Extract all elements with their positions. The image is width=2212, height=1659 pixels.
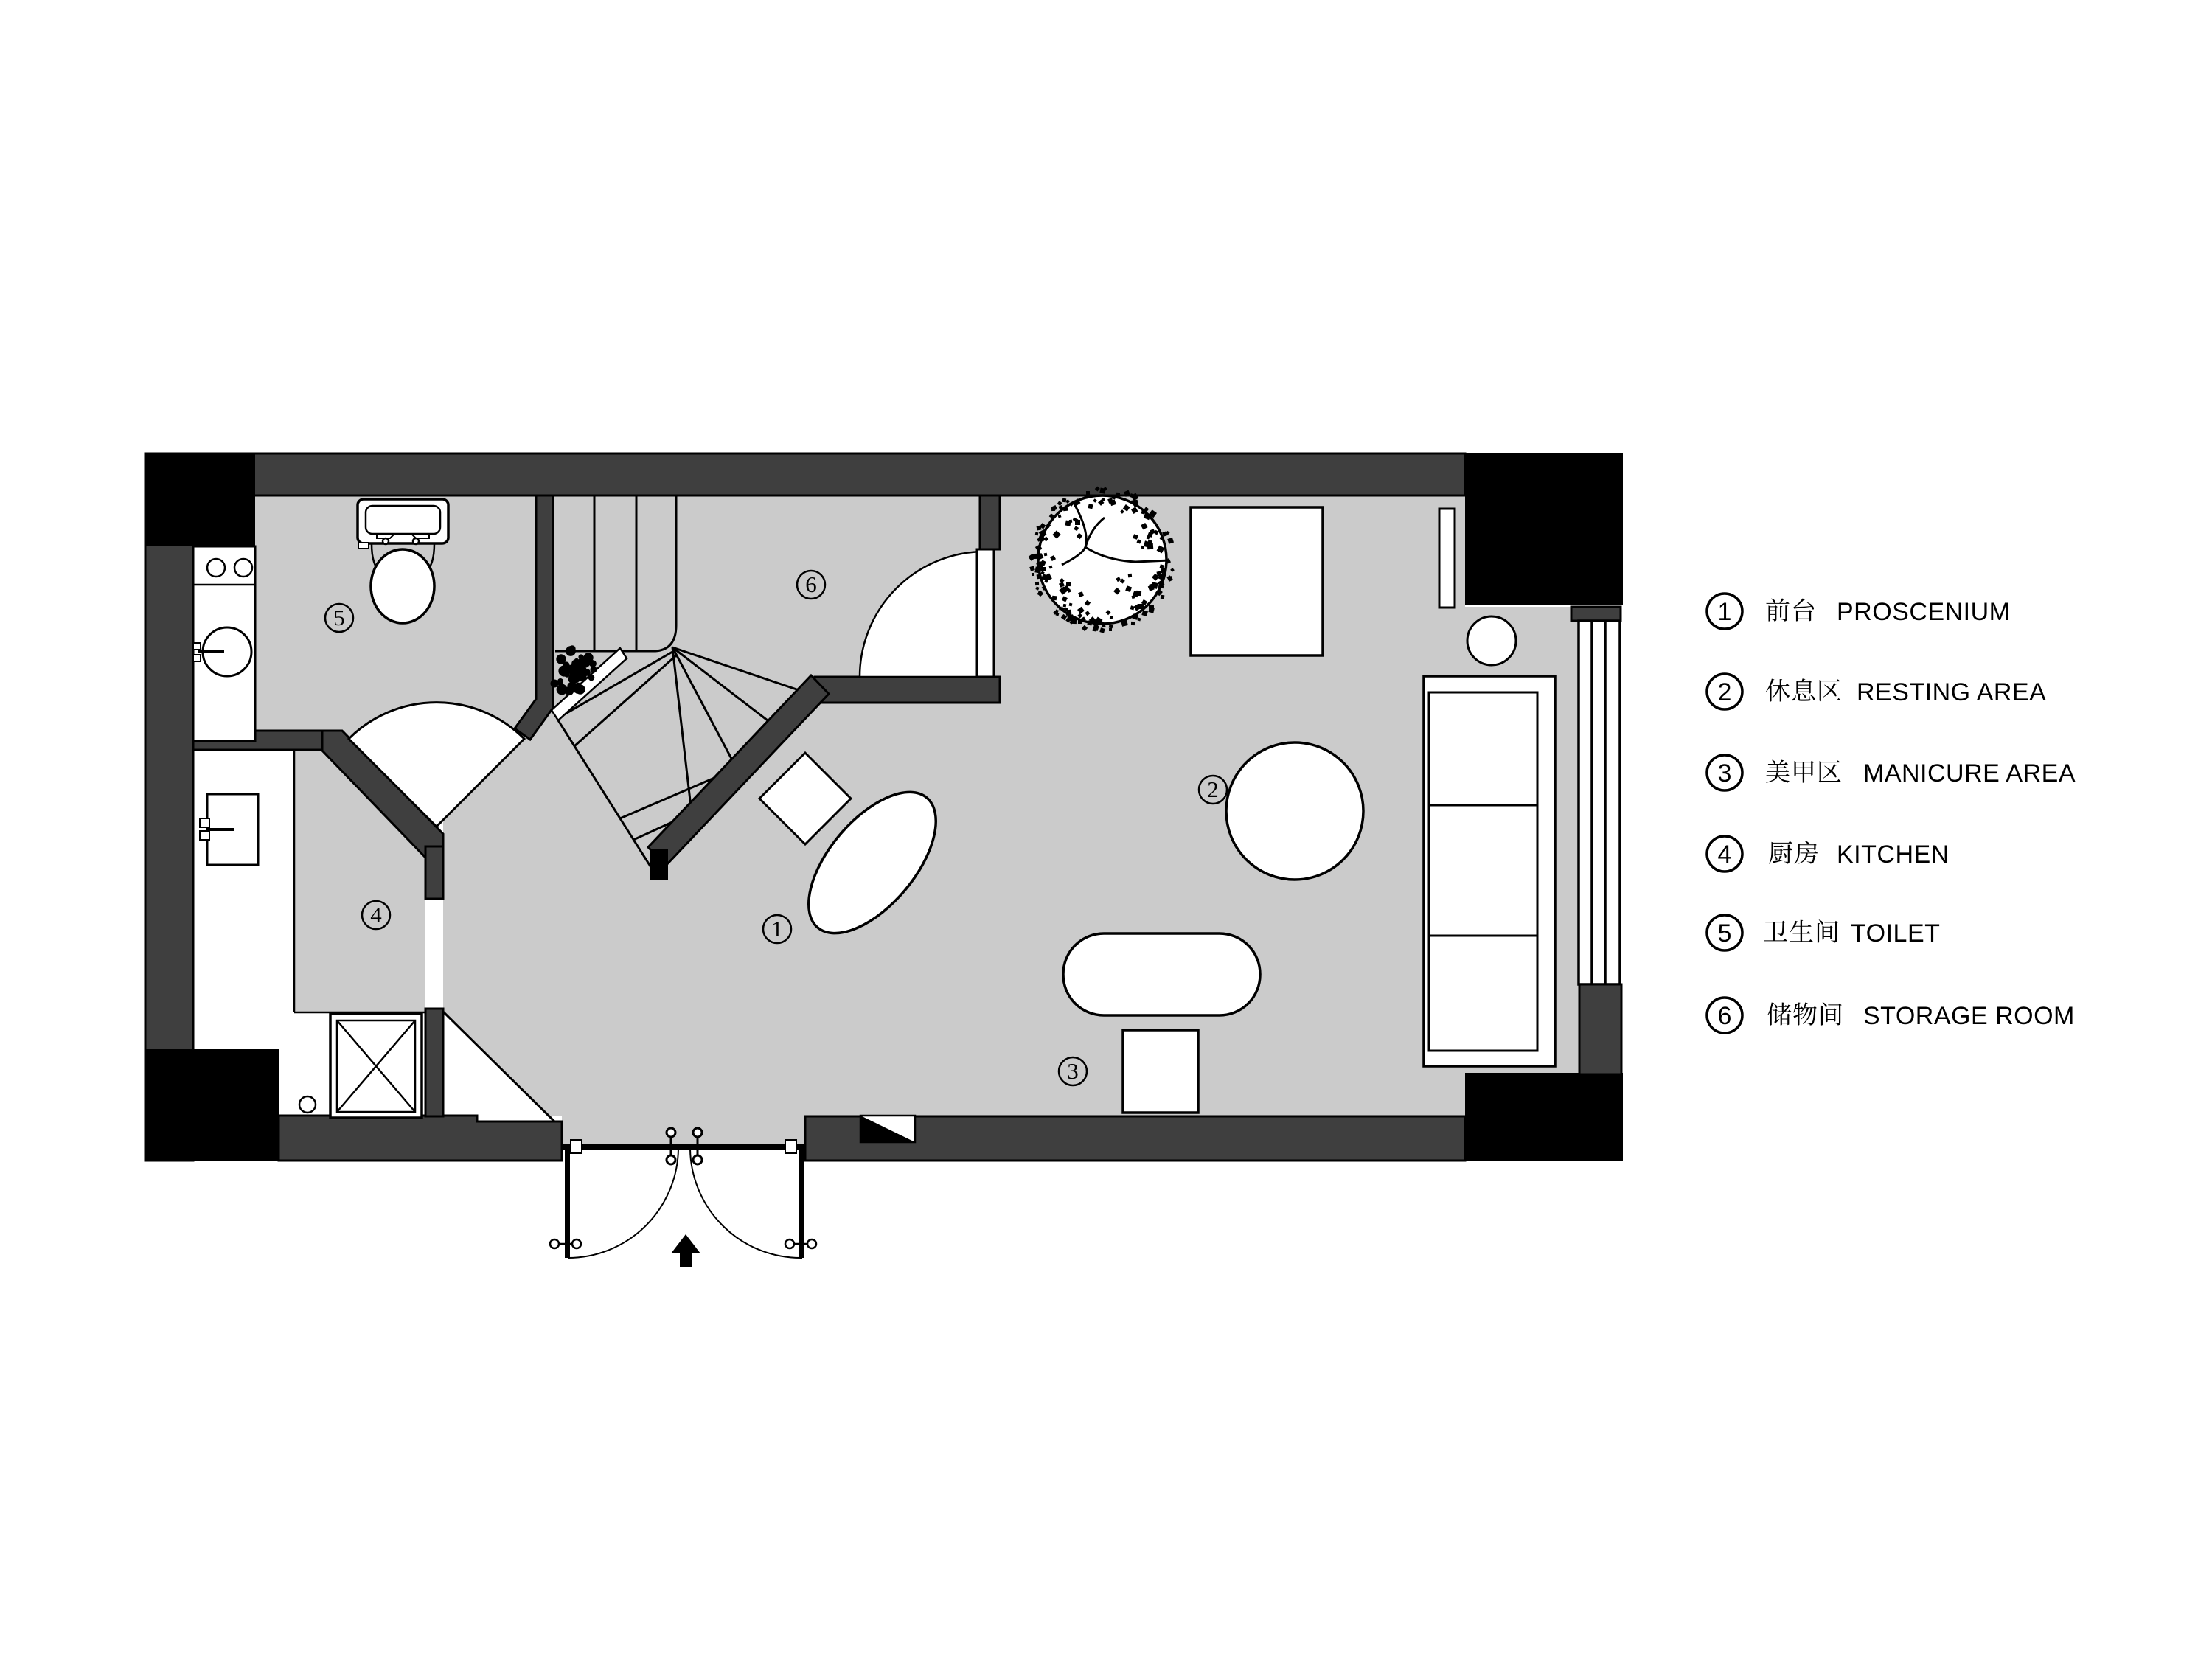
svg-text:2: 2: [1718, 678, 1732, 706]
svg-text:3: 3: [1718, 759, 1732, 787]
svg-text:3: 3: [1067, 1058, 1079, 1084]
svg-text:6: 6: [805, 571, 817, 597]
svg-text:4: 4: [1718, 841, 1732, 869]
svg-text:PROSCENIUM: PROSCENIUM: [1837, 598, 2010, 626]
svg-text:MANICURE AREA: MANICURE AREA: [1863, 759, 2076, 787]
svg-text:6: 6: [1718, 1002, 1732, 1030]
svg-text:1: 1: [1718, 598, 1732, 626]
svg-text:STORAGE ROOM: STORAGE ROOM: [1863, 1002, 2075, 1030]
svg-text:KITCHEN: KITCHEN: [1837, 841, 1950, 869]
svg-text:5: 5: [1718, 919, 1732, 947]
svg-text:5: 5: [333, 605, 345, 630]
svg-text:4: 4: [370, 902, 382, 928]
svg-text:2: 2: [1207, 776, 1219, 802]
svg-text:1: 1: [771, 916, 783, 942]
svg-text:TOILET: TOILET: [1851, 919, 1940, 947]
svg-text:RESTING AREA: RESTING AREA: [1857, 678, 2046, 706]
